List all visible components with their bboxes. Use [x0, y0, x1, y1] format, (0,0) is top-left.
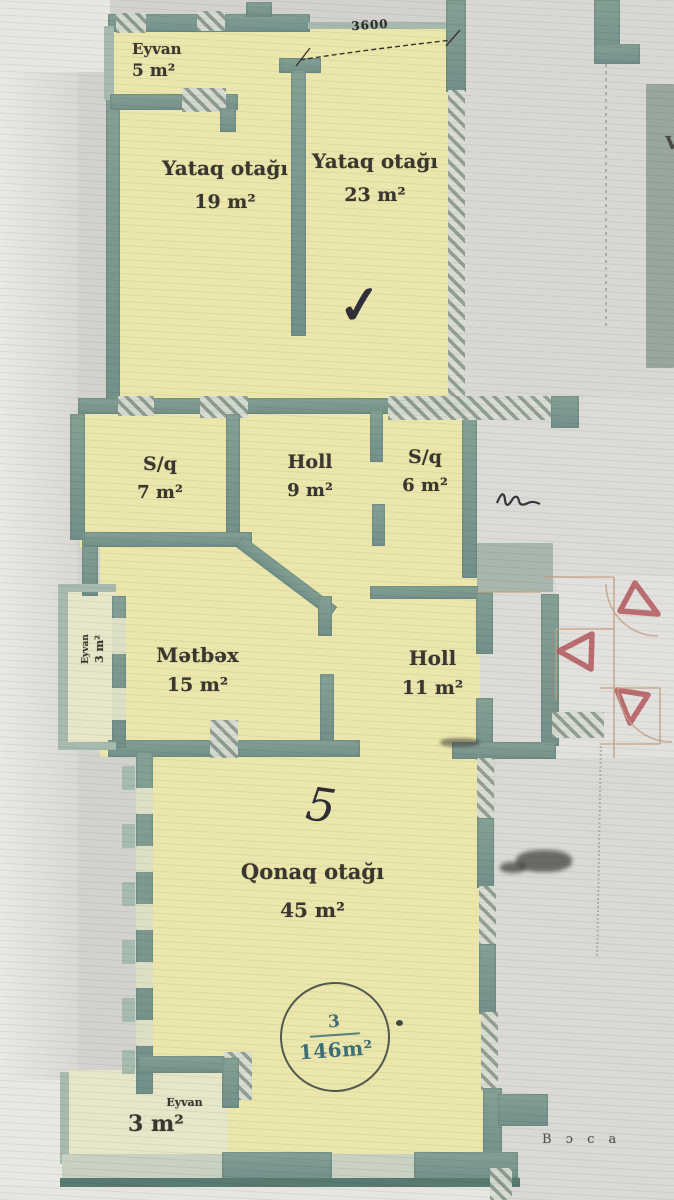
wall-segment	[220, 108, 236, 132]
wall-hatch	[490, 1168, 512, 1200]
room-area: 3 m²	[93, 607, 107, 691]
wall-hatch	[479, 886, 496, 946]
room-name: Eyvan	[81, 607, 93, 691]
wall-hatch	[116, 13, 146, 33]
floor-plan-photo: { "plan": { "rooms": [ {"name":"Eyvan","…	[0, 0, 674, 1200]
paper-top-left-corner	[0, 0, 110, 72]
bottom-wall-gap	[332, 1154, 416, 1178]
window-gap	[136, 788, 153, 814]
room-label-living: Qonaq otağı 45 m²	[200, 858, 425, 923]
window-gap	[136, 1020, 153, 1046]
bottom-wall-shadow	[60, 1178, 520, 1187]
room-area: 15 m²	[115, 673, 280, 698]
wall-hatch	[481, 1012, 498, 1090]
room-label-hall-9: Holl 9 m²	[245, 450, 375, 502]
room-label-eyvan-left: Eyvan 3 m²	[81, 607, 107, 691]
room-name: S/q	[100, 452, 220, 477]
room-label-bedroom-23: Yataq otağı 23 m²	[290, 148, 460, 208]
wall-segment	[594, 44, 640, 64]
room-name: Yataq otağı	[290, 148, 460, 174]
lobby-room-white-2	[600, 688, 674, 746]
room-area: 45 m²	[200, 897, 425, 923]
wall-segment	[226, 414, 240, 536]
wall-segment	[372, 504, 385, 546]
wall-hatch	[197, 11, 225, 31]
window-stub	[122, 1050, 135, 1074]
wall-segment	[106, 96, 120, 406]
wall-segment	[70, 414, 85, 540]
room-area: 11 m²	[360, 676, 505, 701]
room-name: Qonaq otağı	[200, 858, 425, 885]
room-label-kitchen: Mətbəx 15 m²	[115, 642, 280, 698]
wall-segment-light	[646, 84, 674, 368]
room-label-sq-7: S/q 7 m²	[100, 452, 220, 504]
wall-segment	[320, 674, 334, 742]
room-area: 9 m²	[245, 479, 375, 502]
window-gap	[136, 846, 153, 872]
stamp-total-area: 146m²	[298, 1035, 374, 1064]
grey-block-mid	[477, 543, 553, 592]
room-area: 6 m²	[370, 474, 480, 497]
room-area: 7 m²	[100, 481, 220, 504]
room-area: 19 m²	[140, 190, 310, 215]
wall-segment	[498, 1094, 548, 1126]
wall-segment	[370, 586, 478, 599]
bottom-right-text: В ɔ с а	[542, 1132, 672, 1149]
room-fill-bedrooms	[112, 26, 460, 406]
window-stub	[122, 766, 135, 790]
stamp-dot	[396, 1020, 403, 1026]
neighbor-area-top	[462, 0, 674, 402]
balcony-rail	[60, 1072, 69, 1164]
wall-hatch	[118, 396, 154, 416]
balcony-rail	[58, 742, 116, 750]
wall-hatch	[210, 720, 238, 758]
balcony-rail	[58, 584, 116, 592]
wall-segment	[138, 1056, 228, 1073]
window-stub	[122, 882, 135, 906]
wall-hatch	[200, 396, 248, 418]
room-name: S/q	[370, 445, 480, 470]
room-name: Holl	[245, 450, 375, 475]
wall-segment	[246, 2, 272, 17]
wall-segment	[84, 532, 252, 547]
wall-segment	[551, 396, 579, 428]
window-gap	[136, 962, 153, 988]
wall-segment	[477, 818, 494, 888]
room-label-hall-11: Holl 11 m²	[360, 645, 505, 701]
room-name: Holl	[360, 645, 505, 671]
window-stub	[122, 940, 135, 964]
wall-hatch	[448, 90, 465, 405]
room-label-sq-6: S/q 6 m²	[370, 445, 480, 497]
ink-smudge	[500, 862, 526, 873]
wall-segment	[479, 944, 496, 1014]
room-name: Eyvan	[128, 1096, 223, 1110]
wall-hatch	[477, 758, 494, 820]
pen-number-five: 5	[292, 773, 350, 839]
room-name: Mətbəx	[115, 642, 280, 668]
edge-letter: V	[660, 132, 674, 155]
balcony-rail	[58, 586, 68, 750]
room-area: 23 m²	[290, 183, 460, 208]
window-stub	[122, 824, 135, 848]
room-label-bedroom-19: Yataq otağı 19 m²	[140, 155, 310, 215]
wall-segment	[222, 1058, 239, 1108]
bottom-wall-gap	[62, 1154, 224, 1178]
room-area: 5 m²	[132, 60, 227, 82]
room-area: 3 m²	[128, 1110, 223, 1139]
window-gap	[136, 904, 153, 930]
room-name: Yataq otağı	[140, 155, 310, 181]
window-stub	[122, 998, 135, 1022]
room-label-eyvan-top: Eyvan 5 m²	[132, 40, 227, 82]
room-label-eyvan-bottom: Eyvan 3 m²	[128, 1096, 223, 1139]
wall-hatch	[552, 712, 604, 738]
pen-checkmark: ✓	[327, 269, 394, 342]
ink-smudge	[440, 738, 480, 747]
room-name: Eyvan	[132, 40, 227, 60]
wall-segment	[222, 1152, 332, 1180]
wall-segment	[318, 596, 332, 636]
wall-segment	[446, 0, 466, 92]
stamp-floor-number: 3	[327, 1012, 340, 1033]
wall-segment-light	[104, 26, 114, 100]
wall-hatch	[388, 396, 560, 420]
